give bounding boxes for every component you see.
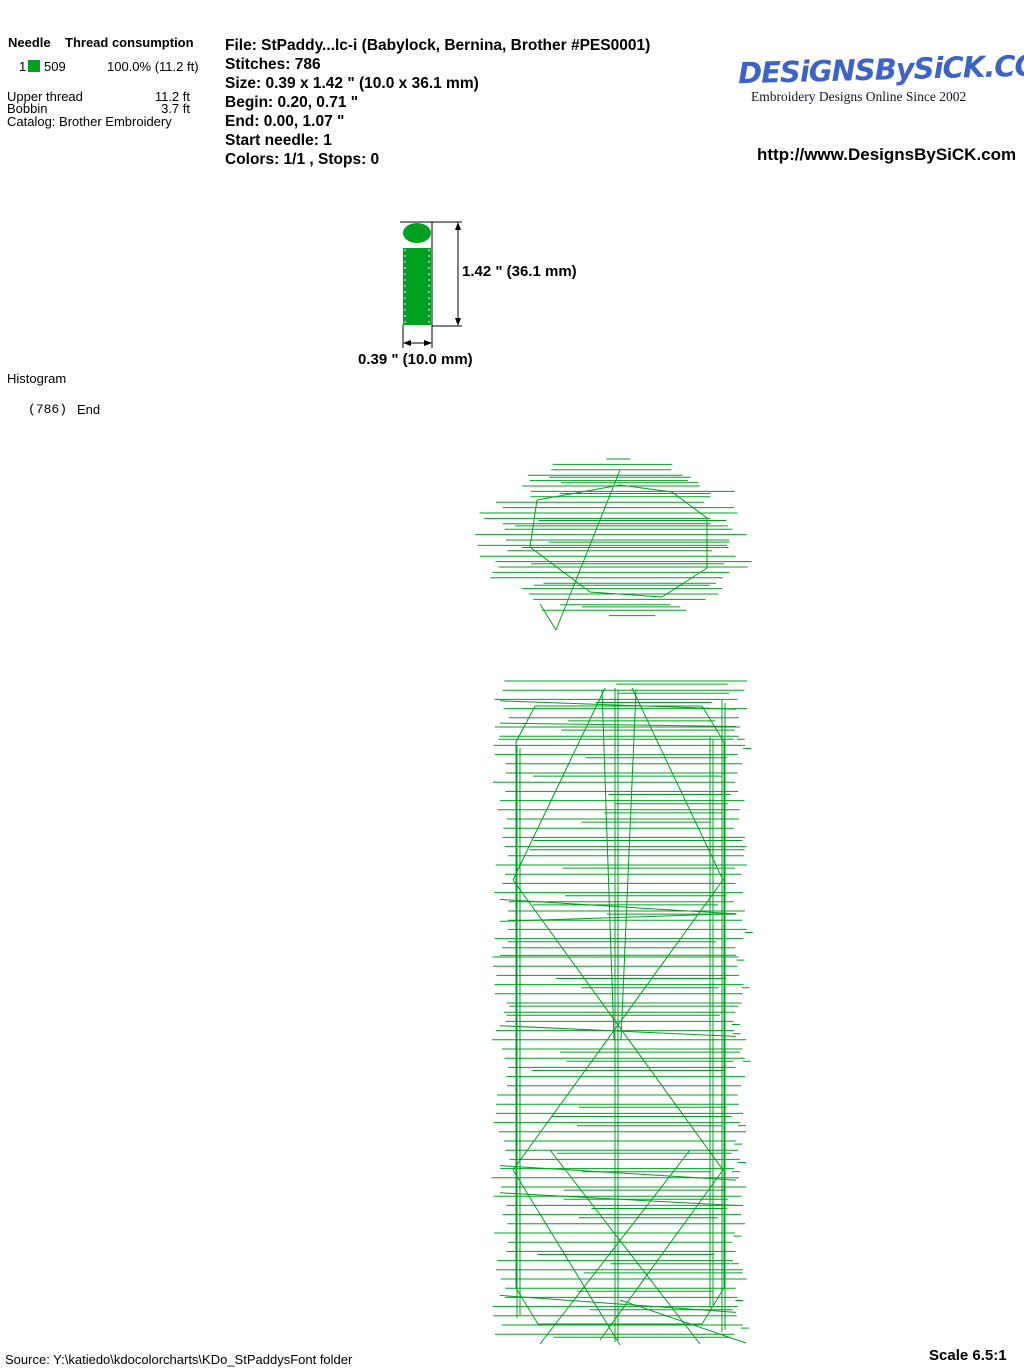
- thread-usage: 100.0% (11.2 ft): [107, 59, 199, 74]
- histogram-stitch-count: (786): [28, 402, 67, 417]
- end-line: End: 0.00, 1.07 ": [225, 112, 650, 131]
- begin-line: Begin: 0.20, 0.71 ": [225, 93, 650, 112]
- thumbnail-dot-shape: [403, 223, 431, 243]
- thread-consumption-header: Thread consumption: [65, 35, 194, 50]
- needle-number: 1: [19, 59, 26, 74]
- brand-tagline: Embroidery Designs Online Since 2002: [751, 89, 966, 105]
- file-info-block: File: StPaddy...lc-i (Babylock, Bernina,…: [225, 36, 650, 169]
- start-needle-line: Start needle: 1: [225, 131, 650, 150]
- stitches-line: Stitches: 786: [225, 55, 650, 74]
- histogram-title: Histogram: [7, 371, 66, 386]
- colors-stops-line: Colors: 1/1 , Stops: 0: [225, 150, 650, 169]
- catalog-line: Catalog: Brother Embroidery: [7, 114, 172, 129]
- design-thumbnail: [350, 215, 480, 355]
- histogram-end-label: End: [77, 402, 100, 417]
- needle-column-header: Needle: [8, 35, 51, 50]
- thread-color-code: 509: [44, 59, 66, 74]
- width-dimension-label: 0.39 " (10.0 mm): [358, 351, 473, 368]
- thumbnail-bar-shape: [403, 248, 431, 325]
- bar-underlay: [513, 688, 746, 1345]
- size-line: Size: 0.39 x 1.42 " (10.0 x 36.1 mm): [225, 74, 650, 93]
- stitch-plot: [0, 0, 1024, 1370]
- site-url: http://www.DesignsBySiCK.com: [757, 145, 1024, 165]
- height-dimension-label: 1.42 " (36.1 mm): [462, 263, 577, 280]
- scale-label: Scale 6.5:1: [929, 1347, 1007, 1364]
- file-name-line: File: StPaddy...lc-i (Babylock, Bernina,…: [225, 36, 650, 55]
- dot-stitches: [475, 459, 752, 630]
- source-path: Source: Y:\katiedo\kdocolorcharts\KDo_St…: [5, 1352, 352, 1367]
- thread-color-swatch: [28, 60, 40, 72]
- spec-sheet-page: Needle Thread consumption 1 509 100.0% (…: [0, 0, 1024, 1370]
